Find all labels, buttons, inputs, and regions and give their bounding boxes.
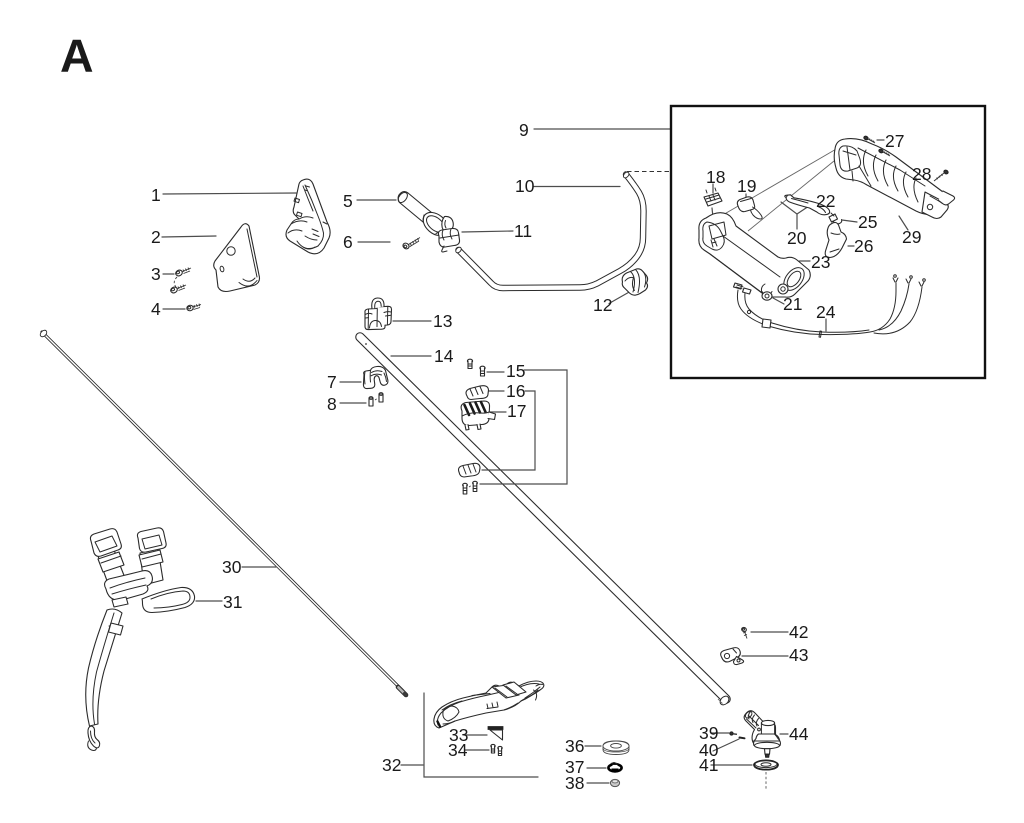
svg-text:34: 34 (448, 740, 468, 760)
svg-text:32: 32 (382, 755, 401, 775)
svg-text:43: 43 (789, 645, 808, 665)
svg-text:14: 14 (434, 346, 454, 366)
svg-text:18: 18 (706, 167, 725, 187)
svg-text:30: 30 (222, 557, 242, 577)
svg-text:19: 19 (737, 176, 756, 196)
svg-text:3: 3 (151, 264, 161, 284)
svg-text:4: 4 (151, 299, 161, 319)
svg-text:22: 22 (816, 191, 835, 211)
svg-text:21: 21 (783, 294, 802, 314)
svg-text:20: 20 (787, 228, 807, 248)
svg-text:2: 2 (151, 227, 161, 247)
svg-text:16: 16 (506, 381, 525, 401)
svg-text:24: 24 (816, 302, 836, 322)
svg-text:10: 10 (515, 176, 535, 196)
svg-text:7: 7 (327, 372, 337, 392)
svg-text:8: 8 (327, 394, 337, 414)
svg-text:42: 42 (789, 622, 808, 642)
svg-text:11: 11 (514, 221, 532, 241)
svg-text:25: 25 (858, 212, 877, 232)
svg-text:29: 29 (902, 227, 921, 247)
svg-text:6: 6 (343, 232, 353, 252)
svg-text:1: 1 (151, 185, 161, 205)
svg-text:A: A (60, 30, 94, 82)
svg-text:28: 28 (912, 164, 931, 184)
svg-text:17: 17 (507, 401, 526, 421)
svg-text:9: 9 (519, 120, 529, 140)
svg-text:26: 26 (854, 236, 873, 256)
svg-text:13: 13 (433, 311, 452, 331)
svg-text:5: 5 (343, 191, 353, 211)
svg-text:41: 41 (699, 755, 718, 775)
svg-text:36: 36 (565, 736, 584, 756)
svg-text:12: 12 (593, 295, 612, 315)
svg-text:27: 27 (885, 131, 904, 151)
svg-text:38: 38 (565, 773, 584, 793)
svg-text:31: 31 (223, 592, 242, 612)
svg-text:44: 44 (789, 724, 809, 744)
svg-text:23: 23 (811, 252, 830, 272)
svg-text:15: 15 (506, 361, 525, 381)
